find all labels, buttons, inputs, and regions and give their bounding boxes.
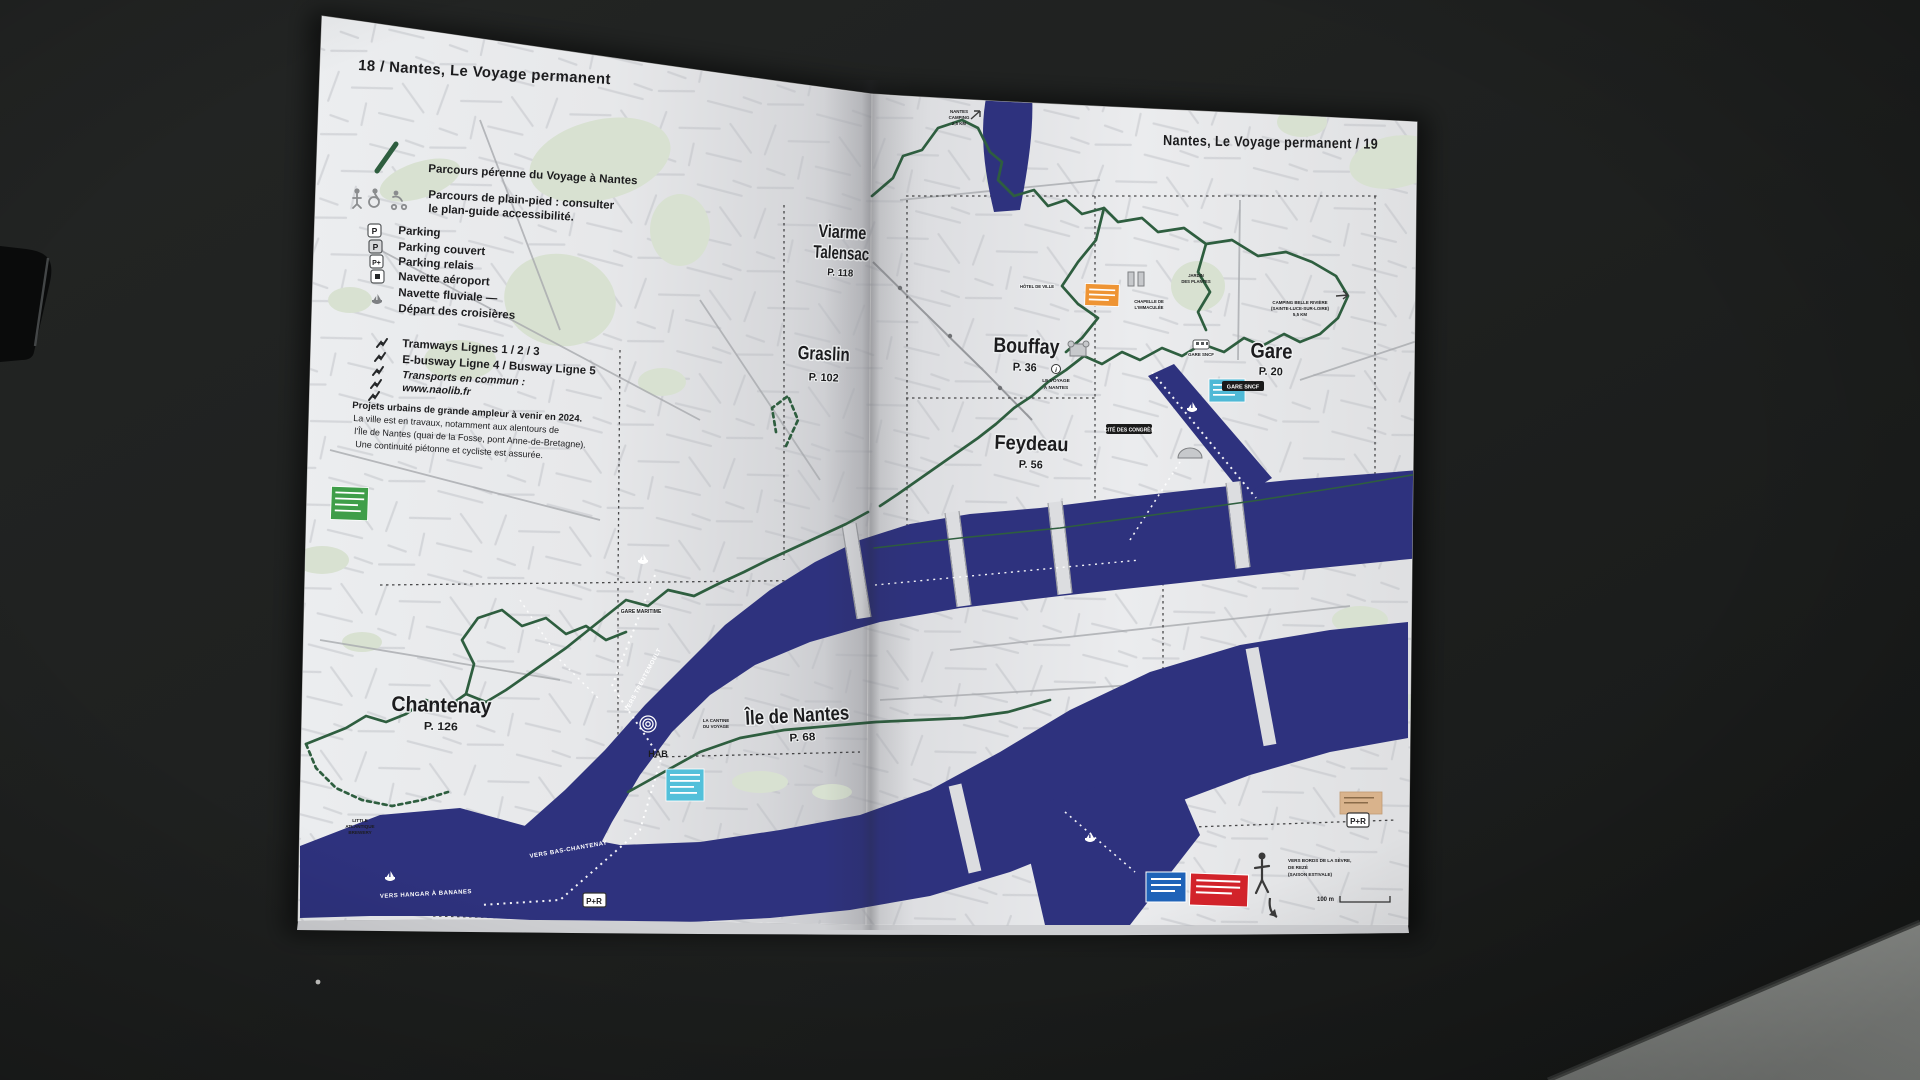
photo-vignette (0, 0, 1920, 1080)
photo-of-open-map-book: P+R P+R GARE SNCF CITÉ DES CONGRÈS 18 / … (0, 0, 1920, 1080)
